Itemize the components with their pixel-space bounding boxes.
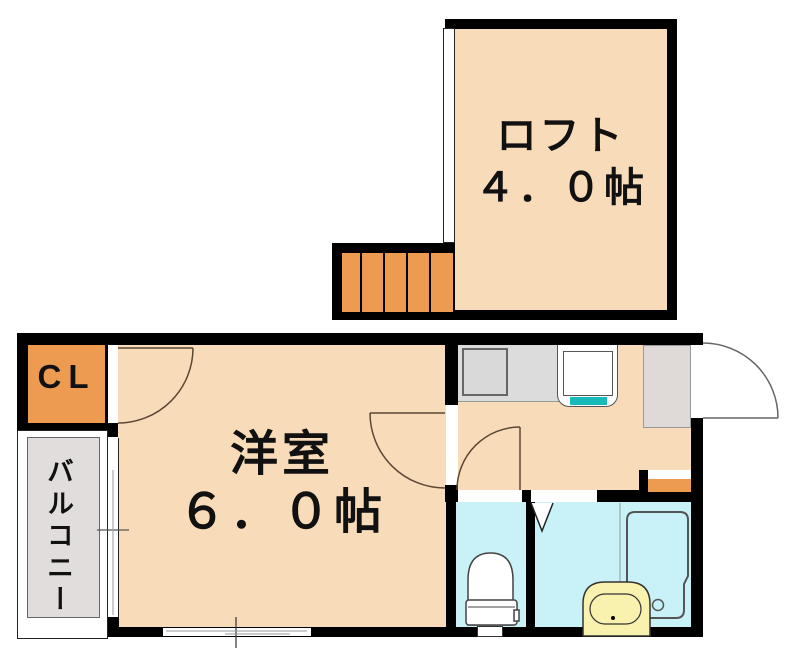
loft-wall-right	[667, 19, 677, 320]
wall-room-right-upper	[445, 345, 458, 405]
wall-toilet-left	[446, 502, 456, 637]
loft-name: ロフト	[455, 110, 667, 162]
genkan-entry-area	[643, 345, 691, 428]
sink-basin	[563, 351, 613, 396]
loft-wall-bottom	[445, 310, 677, 320]
entrance-step	[648, 479, 691, 492]
western-room-size: ６．０帖	[118, 484, 446, 542]
loft-wall-top	[445, 19, 677, 29]
toilet-window-icon	[477, 626, 503, 637]
wall-top	[17, 333, 703, 345]
wall-hall-bottom-b	[522, 490, 531, 502]
room-bath	[535, 502, 691, 627]
stove-icon	[462, 348, 508, 396]
closet-label: CL	[28, 358, 105, 396]
balcony-label: バルコニー	[46, 447, 78, 627]
western-room-label: 洋室 ６．０帖	[118, 426, 446, 542]
floor-plan: ロフト ４．０帖 洋室 ６．０帖 CL バルコニー	[0, 0, 800, 654]
stairs-icon	[342, 253, 453, 312]
stair-tread-line	[429, 253, 431, 312]
wall-entry-stub	[639, 470, 648, 492]
wall-toilet-bath	[526, 502, 535, 627]
wall-right	[691, 418, 703, 637]
room-window-icon	[163, 628, 311, 636]
entry-threshold	[648, 470, 691, 479]
stair-tread-line	[383, 253, 385, 312]
sink-edge-teal	[570, 397, 607, 405]
stair-tread-line	[406, 253, 408, 312]
loft-size: ４．０帖	[455, 162, 667, 214]
kitchen-sink-icon	[557, 345, 618, 407]
loft-window-icon	[443, 28, 455, 243]
stair-tread-line	[360, 253, 362, 312]
wall-closet-right	[105, 345, 108, 423]
western-room-name: 洋室	[118, 426, 446, 484]
room-toilet	[456, 502, 526, 627]
loft-label: ロフト ４．０帖	[455, 110, 667, 214]
entrance-door-swing-icon	[703, 343, 778, 418]
wall-hall-bottom-a	[446, 490, 457, 502]
wall-closet-left	[17, 345, 28, 423]
